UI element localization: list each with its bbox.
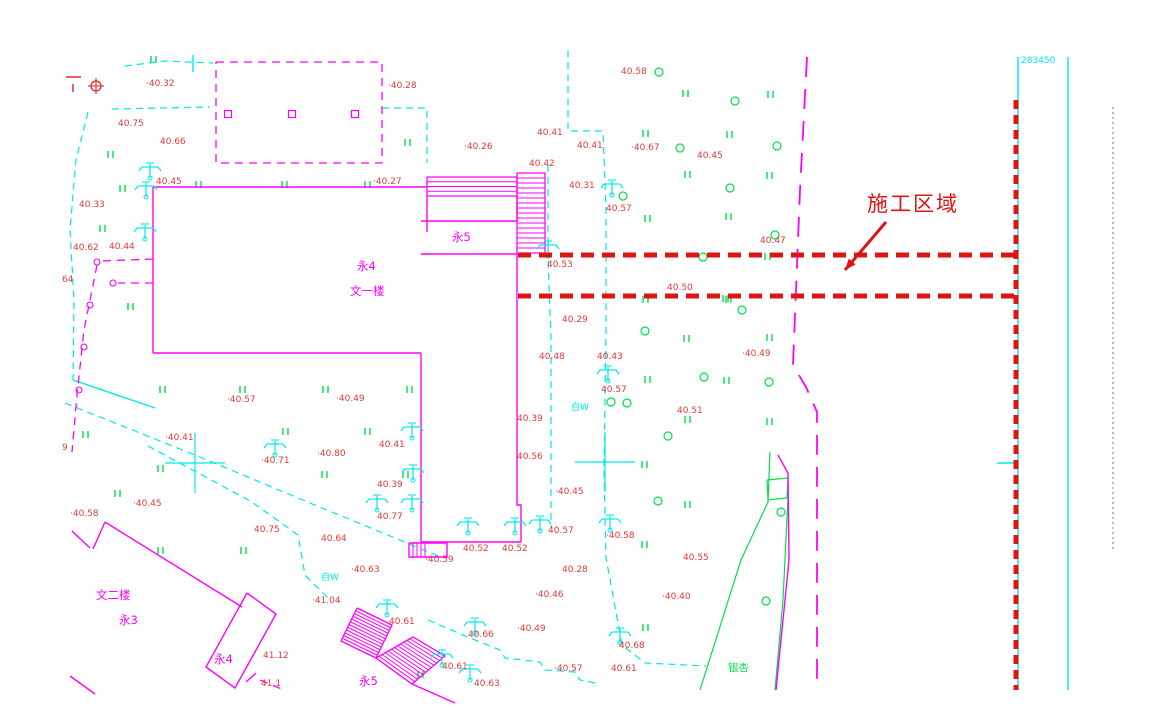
elevation-label: 40.58 <box>621 67 647 77</box>
tree-branch <box>478 669 481 673</box>
building-label: 永3 <box>119 613 138 627</box>
utility-dashed-line <box>112 107 210 109</box>
elevation-label: ·40.46 <box>535 590 564 600</box>
elevation-label: 40.45 <box>697 151 723 161</box>
elevation-label: ·40.45 <box>133 499 162 509</box>
shrub-circle-icon <box>726 184 734 192</box>
elevation-label: 40.28 <box>562 565 588 575</box>
elevation-label: 40.57 <box>606 204 632 214</box>
elevation-label: 40.31 <box>569 181 595 191</box>
building-dashed-line <box>72 265 97 452</box>
tree-branch <box>529 520 532 524</box>
grass-icon <box>403 471 408 478</box>
grass-icon <box>727 131 732 138</box>
tree-branch <box>476 522 479 526</box>
tree-icon <box>376 600 398 617</box>
utility-pole-icon <box>87 302 93 308</box>
grass-icon <box>128 303 133 310</box>
shrub-circle-icon <box>664 432 672 440</box>
construction-area-label: 施工区域 <box>867 192 959 216</box>
building-label: 永4 <box>357 259 376 273</box>
grass-icon <box>83 431 88 438</box>
tree-branch <box>401 427 404 431</box>
elevation-label: ·40.49 <box>517 624 546 634</box>
elevation-label: 40.57 <box>601 385 627 395</box>
elevation-label: ·40.45 <box>555 487 584 497</box>
elevation-label: ·40.63 <box>351 565 380 575</box>
elevation-label: ·40.58 <box>70 509 99 519</box>
building-outline <box>72 531 90 548</box>
elevation-label: 40.61 <box>389 617 415 627</box>
building-dashed-line <box>101 259 153 261</box>
tree-icon <box>264 440 286 457</box>
tree-icon <box>457 518 479 535</box>
stair-hatch-line <box>352 619 387 636</box>
tree-branch <box>597 370 600 374</box>
tree-icon <box>401 495 423 512</box>
elevation-label: 40.56 <box>517 452 543 462</box>
elevation-label: 40.64 <box>321 534 347 544</box>
building-dashed-line <box>216 62 382 163</box>
grass-icon <box>768 91 773 98</box>
shrub-circle-icon <box>655 68 663 76</box>
building-outline <box>206 593 276 688</box>
grass-icon <box>160 386 165 393</box>
tree-branch <box>366 499 369 503</box>
grass-icon <box>240 386 245 393</box>
tree-branch <box>464 622 467 626</box>
shrub-circle-icon <box>773 142 781 150</box>
elevation-label: ·40.26 <box>464 142 493 152</box>
utility-pole-icon <box>110 280 116 286</box>
elevation-label: 40.51 <box>677 406 703 416</box>
elevation-label: 40.48 <box>539 352 565 362</box>
tree-branch <box>401 499 404 503</box>
column-square-icon <box>352 111 359 118</box>
utility-dashed-line <box>148 446 330 600</box>
grass-icon <box>108 151 113 158</box>
elevation-label: ·40.40 <box>662 592 691 602</box>
shrub-circle-icon <box>607 398 615 406</box>
tree-branch <box>618 519 621 523</box>
grass-icon <box>365 428 370 435</box>
building-label: 文一楼 <box>350 284 385 298</box>
elevation-label: ·40.57 <box>554 664 583 674</box>
utility-pole-icon <box>81 344 87 350</box>
elevation-label: ·41.04 <box>312 596 341 606</box>
elevation-label: ·40.59 <box>425 555 454 565</box>
elevation-label: 40.50 <box>667 283 693 293</box>
tree-branch <box>264 444 267 448</box>
stair-hatch-line <box>346 630 381 647</box>
grass-icon <box>726 213 731 220</box>
stair-hatch-line <box>345 633 380 650</box>
elevation-label: 40.42 <box>529 159 555 169</box>
tree-branch <box>620 184 623 188</box>
elevation-label: ·40.67 <box>631 143 660 153</box>
elevation-label: 41.1 <box>261 679 281 689</box>
stair-hatch-line <box>413 637 445 656</box>
grass-icon <box>100 225 105 232</box>
elevation-label: 40.44 <box>109 242 135 252</box>
utility-pole-icon <box>94 259 100 265</box>
tree-branch <box>457 522 460 526</box>
utility-dashed-line <box>125 61 213 66</box>
stair-hatch-line <box>341 641 376 658</box>
coordinate-label: 283450 <box>1021 56 1056 66</box>
grass-icon <box>120 185 125 192</box>
grass-icon <box>685 501 690 508</box>
building-label: 文二楼 <box>96 588 131 602</box>
grass-icon <box>158 547 163 554</box>
stair-hatch-line <box>350 622 385 639</box>
elevation-label: 40.41 <box>379 440 405 450</box>
shrub-circle-icon <box>654 497 662 505</box>
tree-branch <box>628 632 631 636</box>
stair-hatch-line <box>354 614 389 631</box>
building-outline <box>93 522 105 549</box>
grass-icon <box>642 541 647 548</box>
grass-icon <box>642 461 647 468</box>
elevation-label: ·40.28 <box>388 81 417 91</box>
tree-branch <box>385 499 388 503</box>
vegetation-boundary-line <box>767 478 788 500</box>
elevation-label: 40.29 <box>562 315 588 325</box>
grass-icon <box>683 90 688 97</box>
grass-icon <box>158 465 163 472</box>
tree-branch <box>450 654 453 658</box>
tree-branch <box>601 184 604 188</box>
ginkgo-area-label: 银杏 <box>728 661 749 674</box>
elevation-label: ·40.57 <box>227 395 256 405</box>
shrub-circle-icon <box>777 508 785 516</box>
shrub-circle-icon <box>623 399 631 407</box>
elevation-label: 40.63 <box>474 679 500 689</box>
survey-line <box>73 380 155 408</box>
stair-hatch-line <box>410 639 442 659</box>
elevation-label: ·40.32 <box>146 79 175 89</box>
building-outline <box>246 673 256 682</box>
grass-icon <box>724 377 729 384</box>
grass-icon <box>405 139 410 146</box>
grass-icon <box>407 386 412 393</box>
elevation-label: 40.47 <box>760 236 786 246</box>
grass-icon <box>323 386 328 393</box>
well-label: 自W <box>321 571 339 583</box>
stair-hatch-line <box>348 627 383 644</box>
elevation-label: 64 <box>62 275 74 285</box>
grass-icon <box>322 471 327 478</box>
elevation-label: 40.61 <box>611 664 637 674</box>
tree-branch <box>158 167 161 171</box>
building-label: 永5 <box>452 230 471 244</box>
tree-branch <box>135 186 138 190</box>
building-outline <box>70 676 95 694</box>
elevation-label: ·40.58 <box>606 531 635 541</box>
building-label: 永4 <box>214 652 233 666</box>
grid-cross-icon <box>575 432 635 492</box>
hatched-structure-outline <box>376 637 445 684</box>
utility-dashed-line <box>382 108 427 163</box>
elevation-label: ·40.80 <box>317 449 346 459</box>
grass-icon <box>283 428 288 435</box>
tree-branch <box>483 622 486 626</box>
tree-branch <box>139 167 142 171</box>
shrub-circle-icon <box>676 144 684 152</box>
tree-branch <box>616 370 619 374</box>
elevation-label: 40.75 <box>118 119 144 129</box>
benchmark-icon <box>88 78 104 94</box>
shrub-circle-icon <box>619 192 627 200</box>
elevation-label: 40.41 <box>537 128 563 138</box>
labels-layer: ·40.3240.7540.66·40.2840.58·40.2640.4140… <box>62 67 786 689</box>
road-dashed-line <box>793 57 817 690</box>
tree-branch <box>395 604 398 608</box>
tree-icon <box>401 423 423 440</box>
building-label: 永5 <box>359 674 378 688</box>
grass-icon <box>765 253 770 260</box>
elevation-label: 40.57 <box>548 526 574 536</box>
elevation-label: ·40.27 <box>373 177 402 187</box>
elevation-label: 40.62 <box>73 243 99 253</box>
elevation-label: 40.39 <box>377 480 403 490</box>
shrub-circle-icon <box>731 97 739 105</box>
elevation-label: 40.66 <box>160 137 186 147</box>
cad-site-plan: ·40.3240.7540.66·40.2840.58·40.2640.4140… <box>0 0 1172 711</box>
building-outline <box>412 684 455 703</box>
grass-icon <box>767 172 772 179</box>
column-square-icon <box>289 111 296 118</box>
shrub-circle-icon <box>699 253 707 261</box>
stair-hatch-line <box>342 638 377 655</box>
elevation-label: 40.77 <box>377 512 403 522</box>
elevation-label: 40.43 <box>597 352 623 362</box>
elevation-label: 40.52 <box>463 544 489 554</box>
elevation-label: 40.61 <box>442 662 468 672</box>
site-plan-canvas: ·40.3240.7540.66·40.2840.58·40.2640.4140… <box>0 0 1172 711</box>
elevation-label: 40.66 <box>468 630 494 640</box>
elevation-label: 40.41 <box>577 141 603 151</box>
elevation-label: 40.68 <box>619 641 645 651</box>
elevation-label: ·40.71 <box>261 456 290 466</box>
tree-branch <box>376 604 379 608</box>
grass-icon <box>115 490 120 497</box>
tree-branch <box>283 444 286 448</box>
elevation-label: 9 <box>62 443 68 453</box>
elevation-label: 40.45 <box>156 177 182 187</box>
grass-icon <box>645 215 650 222</box>
tree-icon <box>597 366 619 383</box>
elevation-label: 40.75 <box>254 525 280 535</box>
well-label: 自W <box>571 401 589 413</box>
shrub-circle-icon <box>762 597 770 605</box>
shrub-circle-icon <box>765 378 773 386</box>
elevation-label: 40.55 <box>683 553 709 563</box>
stair-hatch-line <box>376 658 412 684</box>
shrub-circle-icon <box>738 306 746 314</box>
grass-icon <box>767 418 772 425</box>
grass-icon <box>767 334 772 341</box>
tree-branch <box>609 632 612 636</box>
grass-icon <box>645 376 650 383</box>
column-square-icon <box>225 111 232 118</box>
grass-icon <box>643 624 648 631</box>
shrub-circle-icon <box>641 327 649 335</box>
stair-hatch-line <box>349 625 384 642</box>
tree-branch <box>523 522 526 526</box>
grass-icon <box>241 547 246 554</box>
elevation-label: 40.39 <box>517 414 543 424</box>
utility-dashed-line <box>428 620 600 684</box>
tree-icon <box>504 518 526 535</box>
grass-icon <box>643 130 648 137</box>
elevation-label: 41.12 <box>263 651 289 661</box>
elevation-label: 40.52 <box>502 544 528 554</box>
vegetation-boundary-line <box>700 452 770 690</box>
elevation-label: ·40.49 <box>742 349 771 359</box>
tree-branch <box>504 522 507 526</box>
utility-dashed-line <box>548 165 551 528</box>
grass-icon <box>685 416 690 423</box>
tree-branch <box>134 228 137 232</box>
stair-hatch-line <box>353 616 388 633</box>
tree-branch <box>599 519 602 523</box>
tree-icon <box>366 495 388 512</box>
grass-icon <box>684 335 689 342</box>
tree-branch <box>548 520 551 524</box>
elevation-label: 40.33 <box>79 200 105 210</box>
elevation-label: ·40.41 <box>165 433 194 443</box>
tree-branch <box>556 245 559 249</box>
stair-hatch-line <box>344 636 379 653</box>
shrub-circle-icon <box>700 373 708 381</box>
elevation-label: ·40.49 <box>336 394 365 404</box>
elevation-label: 40.53 <box>547 260 573 270</box>
grass-icon <box>685 171 690 178</box>
tree-icon <box>599 515 621 532</box>
